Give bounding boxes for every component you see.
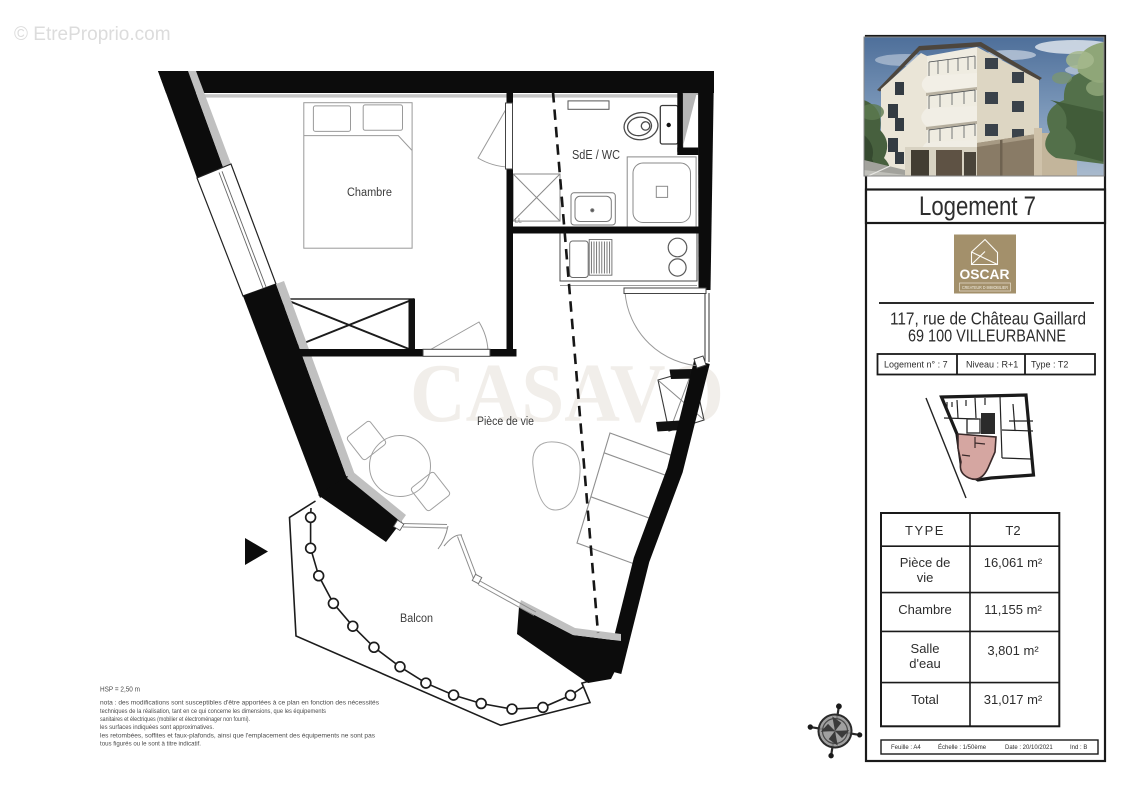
svg-text:Logement 7: Logement 7 [919, 191, 1036, 221]
svg-text:3,801 m²: 3,801 m² [987, 643, 1039, 658]
svg-text:Balcon: Balcon [400, 613, 433, 625]
svg-text:HSP = 2,50 m: HSP = 2,50 m [100, 685, 140, 694]
svg-text:Type : T2: Type : T2 [1031, 360, 1068, 370]
svg-text:nota : des modifications sont: nota : des modifications sont susceptibl… [100, 700, 380, 707]
svg-text:les surfaces indiquées sont ap: les surfaces indiquées sont approximativ… [100, 724, 214, 731]
svg-text:CREATEUR D IMMOBILIER: CREATEUR D IMMOBILIER [962, 285, 1009, 290]
svg-text:SdE / WC: SdE / WC [572, 148, 620, 162]
svg-text:Niveau : R+1: Niveau : R+1 [966, 360, 1018, 370]
svg-text:Total: Total [911, 692, 939, 707]
svg-text:11,155 m²: 11,155 m² [984, 602, 1042, 617]
svg-text:Date : 20/10/2021: Date : 20/10/2021 [1005, 745, 1053, 751]
svg-text:Feuille : A4: Feuille : A4 [891, 745, 921, 751]
svg-text:T2: T2 [1005, 523, 1020, 538]
svg-text:16,061 m²: 16,061 m² [984, 555, 1043, 570]
svg-text:vie: vie [917, 570, 934, 585]
svg-text:les retombées, soffites et fau: les retombées, soffites et faux-plafonds… [100, 732, 376, 739]
svg-text:OSCAR: OSCAR [960, 267, 1010, 282]
svg-text:Salle: Salle [911, 641, 940, 656]
svg-text:69 100 VILLEURBANNE: 69 100 VILLEURBANNE [908, 326, 1066, 346]
svg-text:Pièce de vie: Pièce de vie [477, 416, 534, 428]
svg-text:techniques de la réalisation,: techniques de la réalisation, tant en ce… [100, 708, 326, 715]
svg-text:tous figurés ou le sont à titr: tous figurés ou le sont à titre indicati… [100, 740, 201, 747]
svg-text:sanitaires et électriques (mob: sanitaires et électriques (mobilier et é… [100, 716, 250, 723]
svg-text:d'eau: d'eau [909, 656, 940, 671]
svg-text:Ind : B: Ind : B [1070, 745, 1087, 751]
svg-text:Logement n° : 7: Logement n° : 7 [884, 360, 948, 370]
svg-text:Chambre: Chambre [898, 602, 951, 617]
svg-text:© EtreProprio.com: © EtreProprio.com [14, 24, 171, 45]
svg-text:31,017 m²: 31,017 m² [984, 692, 1043, 707]
svg-text:TYPE: TYPE [905, 523, 945, 538]
svg-text:LL: LL [515, 218, 523, 225]
svg-text:Pièce de: Pièce de [900, 555, 951, 570]
svg-text:Échelle : 1/50ème: Échelle : 1/50ème [938, 744, 987, 751]
svg-text:Chambre: Chambre [347, 187, 392, 199]
